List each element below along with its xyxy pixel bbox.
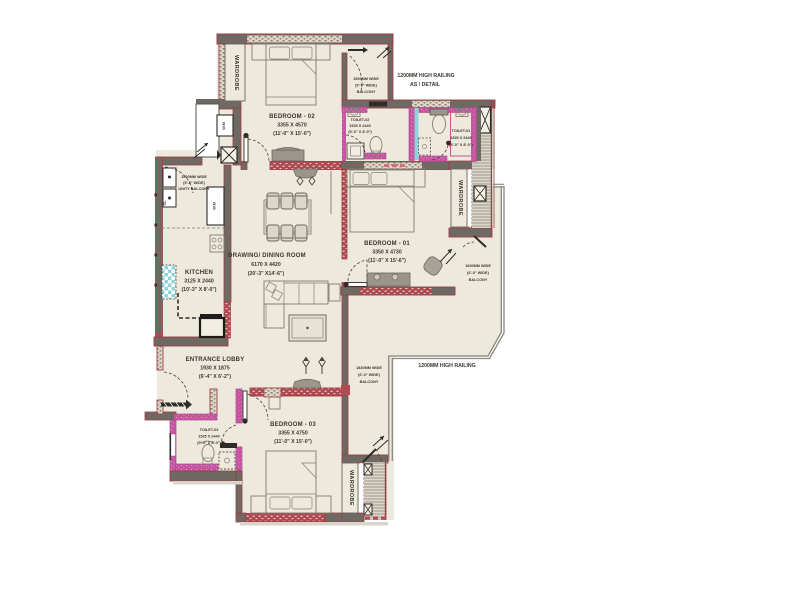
svg-text:1525 X 2440: 1525 X 2440 xyxy=(349,124,371,128)
svg-text:BEDROOM - 02: BEDROOM - 02 xyxy=(269,114,315,120)
svg-text:3350 X 4730: 3350 X 4730 xyxy=(372,250,402,256)
svg-text:(5'-0" X 8'-0"): (5'-0" X 8'-0") xyxy=(449,143,473,147)
svg-text:3355 X 4570: 3355 X 4570 xyxy=(277,123,307,129)
svg-text:(5'-0" X 8'-0"): (5'-0" X 8'-0") xyxy=(348,130,372,134)
svg-text:(5'-0" WIDE): (5'-0" WIDE) xyxy=(355,84,377,88)
svg-text:W.M: W.M xyxy=(222,122,226,130)
svg-text:1200MM HIGH RAILING: 1200MM HIGH RAILING xyxy=(418,363,475,369)
svg-text:6170 X 4420: 6170 X 4420 xyxy=(251,262,281,268)
svg-text:3355 X 4750: 3355 X 4750 xyxy=(278,431,308,437)
svg-text:(6'-0" WIDE): (6'-0" WIDE) xyxy=(358,373,380,377)
svg-text:(20'-3" X14'-6"): (20'-3" X14'-6") xyxy=(248,271,285,277)
svg-text:ENTRANCE LOBBY: ENTRANCE LOBBY xyxy=(186,357,245,363)
svg-text:(5'-0" WIDE): (5'-0" WIDE) xyxy=(183,181,205,185)
svg-text:1525 X 2440: 1525 X 2440 xyxy=(198,435,220,439)
svg-text:1830MM WIDE: 1830MM WIDE xyxy=(356,366,382,370)
svg-text:1525 X 2440: 1525 X 2440 xyxy=(450,136,472,140)
svg-text:BALCONY: BALCONY xyxy=(469,278,488,282)
svg-text:KITCHEN: KITCHEN xyxy=(185,270,213,276)
svg-text:(10'-3" X 8'-0"): (10'-3" X 8'-0") xyxy=(181,287,216,293)
svg-text:3125 X 2440: 3125 X 2440 xyxy=(184,279,214,285)
svg-text:1930 X 1875: 1930 X 1875 xyxy=(200,366,230,372)
svg-text:(11'-0" X 15'-0"): (11'-0" X 15'-0") xyxy=(274,439,312,445)
svg-text:1500MM WIDE: 1500MM WIDE xyxy=(353,77,379,81)
svg-text:AS / DETAIL: AS / DETAIL xyxy=(410,82,441,88)
svg-text:TOILET-03: TOILET-03 xyxy=(200,428,219,432)
svg-text:(11'-0" X 15'-6"): (11'-0" X 15'-6") xyxy=(368,258,406,264)
svg-text:(6'-4" X 6'-2"): (6'-4" X 6'-2") xyxy=(199,374,231,380)
svg-text:BEDROOM - 03: BEDROOM - 03 xyxy=(270,422,316,428)
svg-text:(11'-0" X 15'-0"): (11'-0" X 15'-0") xyxy=(273,131,311,137)
svg-text:UNITY BALCONY: UNITY BALCONY xyxy=(178,187,210,191)
svg-text:TOILET-02: TOILET-02 xyxy=(351,118,370,122)
svg-text:TOILET-01: TOILET-01 xyxy=(452,129,471,133)
svg-text:W.M: W.M xyxy=(213,202,217,210)
svg-text:DRAWING/ DINING ROOM: DRAWING/ DINING ROOM xyxy=(228,253,306,259)
svg-text:(6'-0" WIDE): (6'-0" WIDE) xyxy=(467,271,489,275)
svg-text:1200MM HIGH RAILING: 1200MM HIGH RAILING xyxy=(397,73,454,79)
svg-text:CL: CL xyxy=(163,200,167,206)
svg-text:WARDROBE: WARDROBE xyxy=(233,55,239,91)
svg-text:(5'-0" X 8'-0"): (5'-0" X 8'-0") xyxy=(197,441,221,445)
svg-text:WARDROBE: WARDROBE xyxy=(348,470,354,506)
svg-text:BALCONY: BALCONY xyxy=(357,90,376,94)
svg-text:BEDROOM - 01: BEDROOM - 01 xyxy=(364,241,410,247)
svg-text:WARDROBE: WARDROBE xyxy=(457,180,463,216)
svg-text:BALCONY: BALCONY xyxy=(360,380,379,384)
svg-text:1630MM WIDE: 1630MM WIDE xyxy=(465,264,491,268)
svg-text:1500MM WIDE: 1500MM WIDE xyxy=(181,175,207,179)
